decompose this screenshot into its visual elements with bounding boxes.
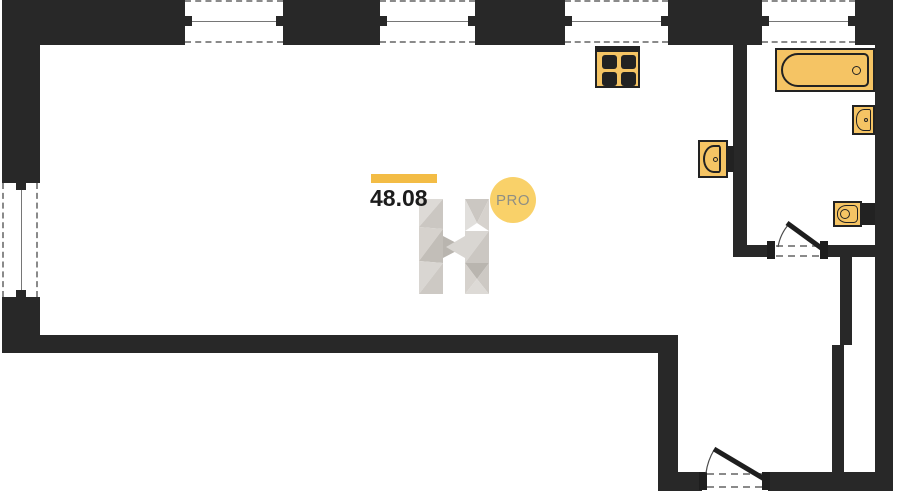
pro-badge: PRO (490, 177, 536, 223)
door-swing-arc (706, 450, 714, 473)
area-accent-bar (371, 174, 437, 183)
door-post (699, 472, 707, 490)
door-swing-arc (778, 224, 789, 247)
area-value: 48.08 (370, 185, 428, 212)
entrance-door (699, 449, 770, 490)
door-leaf (714, 449, 766, 480)
floorplan-canvas: 48.08 PRO (0, 0, 900, 491)
door-post (767, 241, 775, 259)
bathroom-door (767, 223, 828, 259)
h-logo-watermark-icon (419, 199, 489, 294)
